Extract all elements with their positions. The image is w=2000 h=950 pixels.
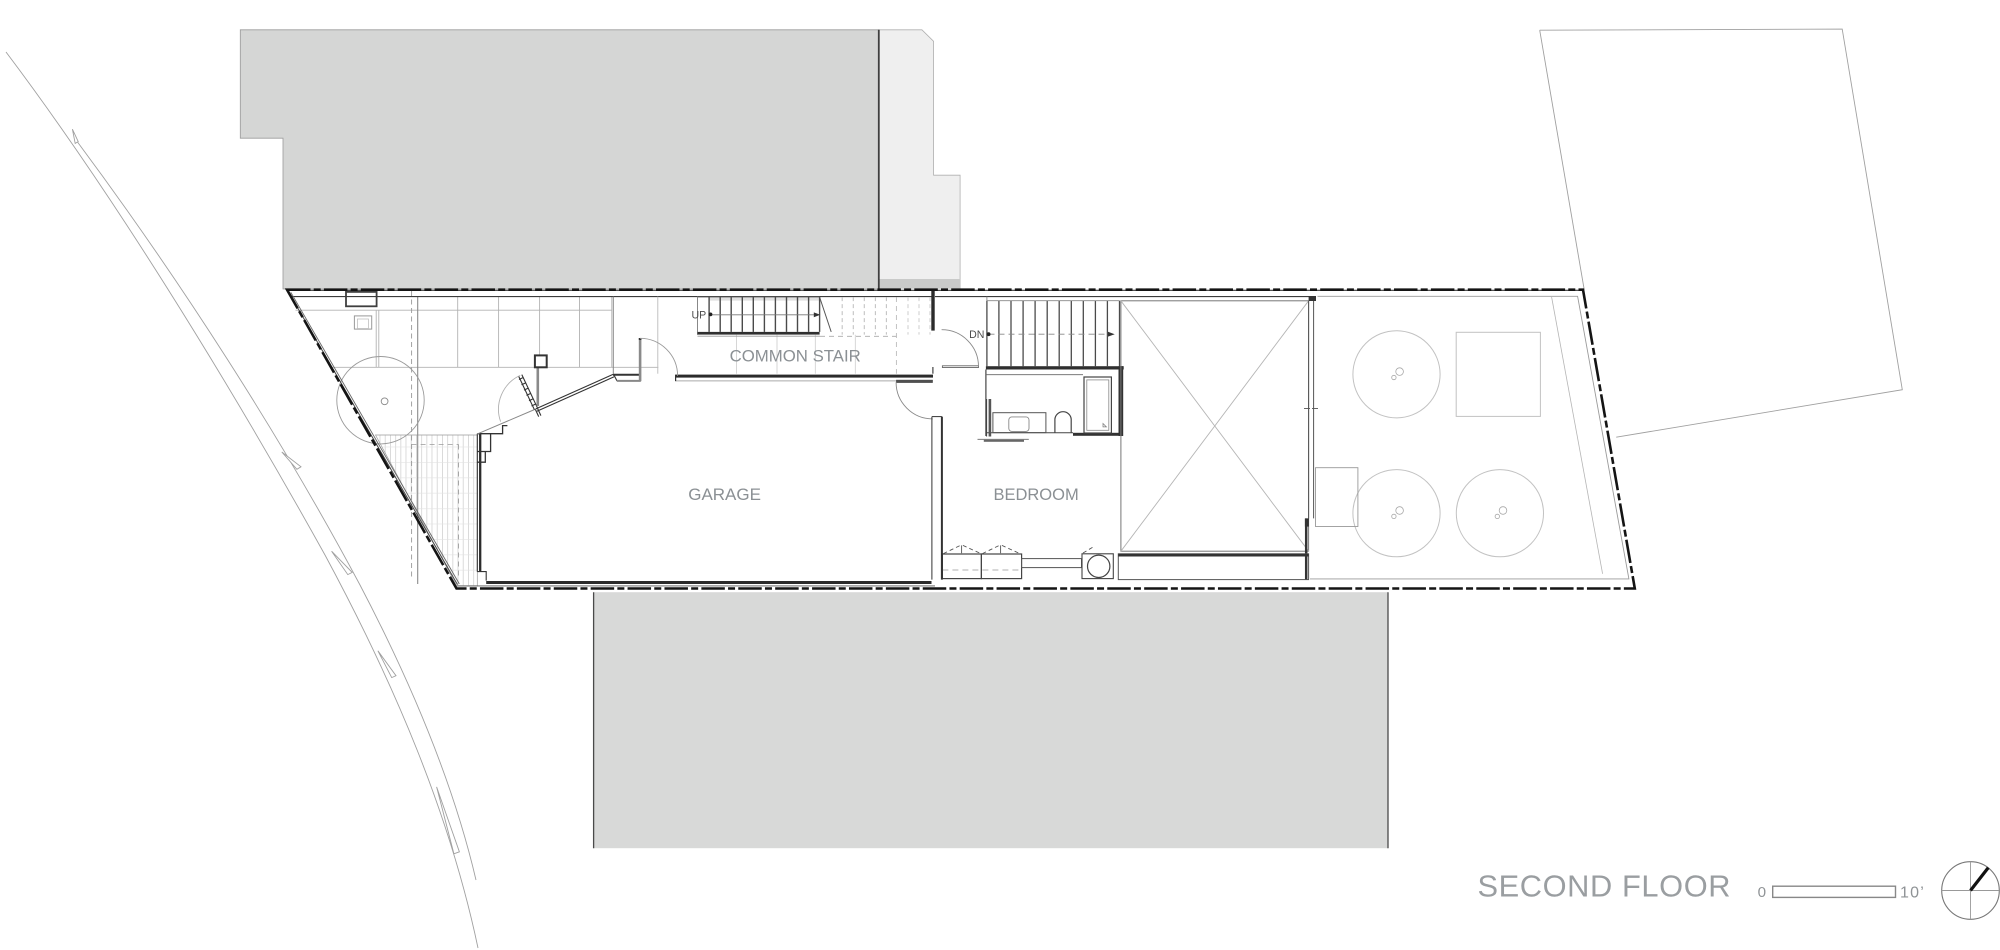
svg-text:DN: DN [969,329,984,341]
svg-text:BEDROOM: BEDROOM [993,486,1078,504]
svg-text:GARAGE: GARAGE [688,485,761,504]
svg-text:UP: UP [691,309,706,321]
svg-text:SECOND FLOOR: SECOND FLOOR [1478,868,1732,903]
svg-text:COMMON STAIR: COMMON STAIR [730,347,861,366]
svg-text:10’: 10’ [1900,885,1925,902]
svg-text:0: 0 [1758,884,1766,901]
